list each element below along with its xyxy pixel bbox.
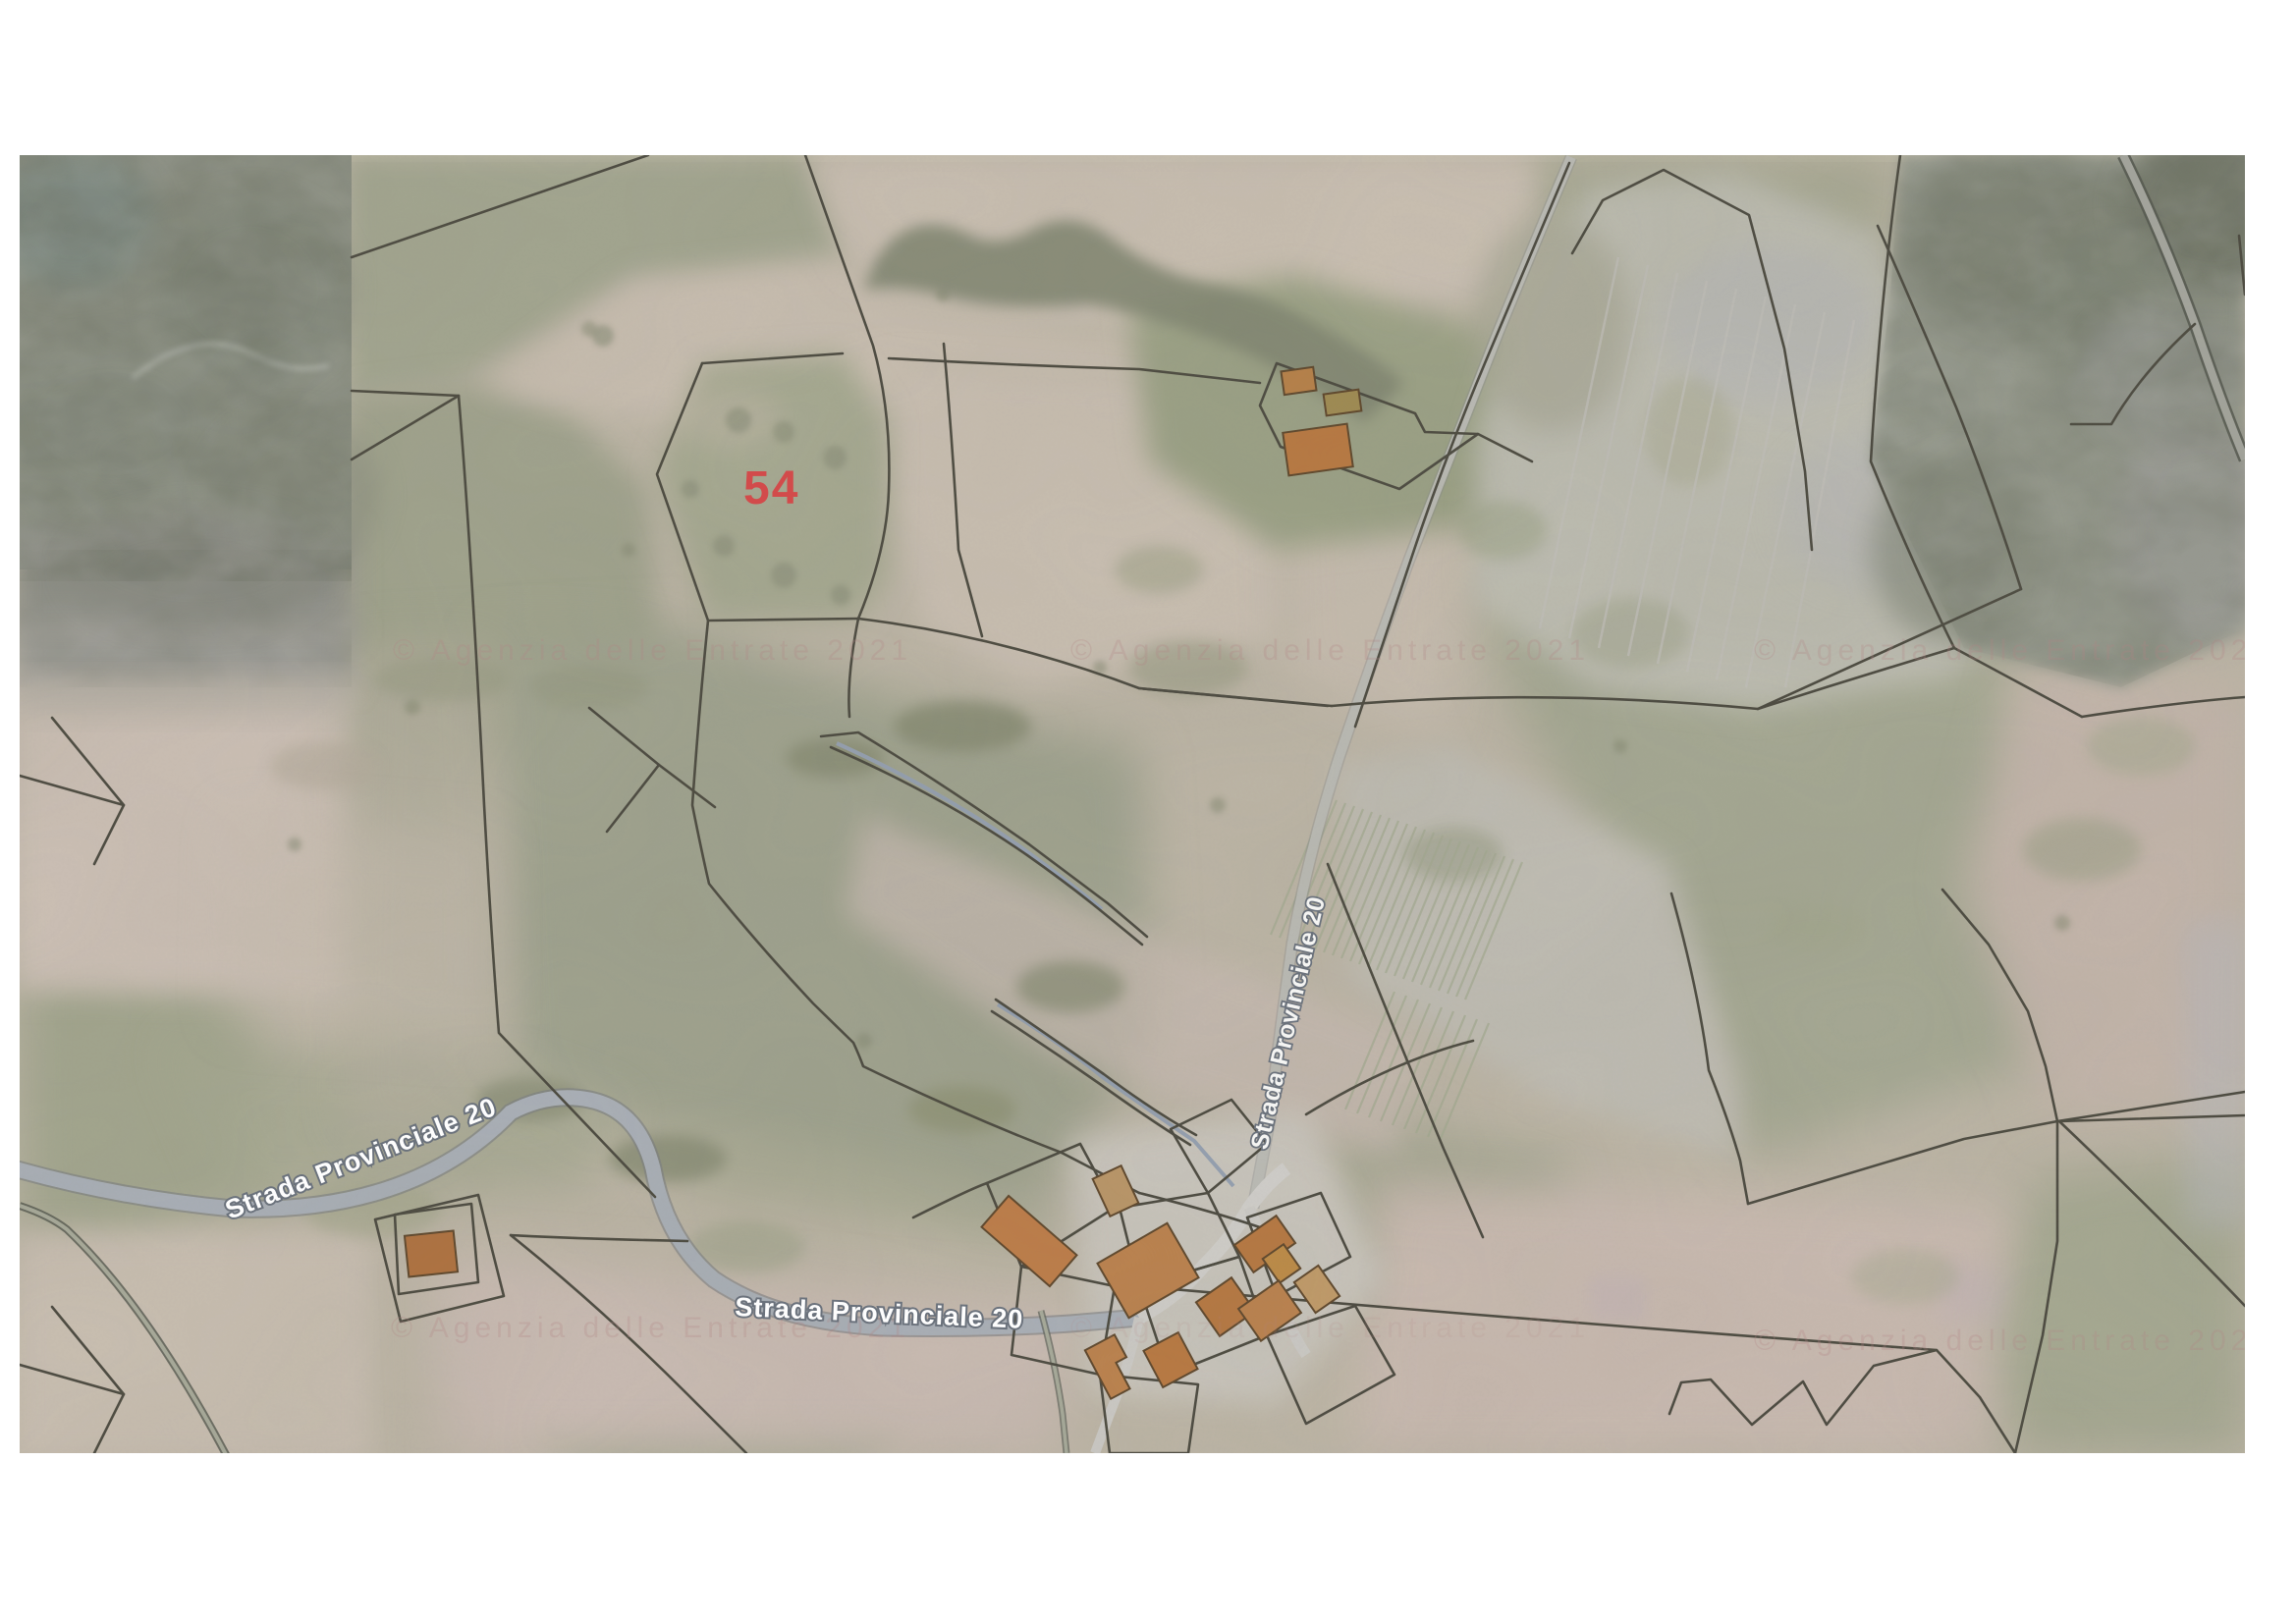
svg-text:© Agenzia delle Entrate 2021: © Agenzia delle Entrate 2021 xyxy=(1754,634,2273,667)
svg-text:© Agenzia delle Entrate 2021: © Agenzia delle Entrate 2021 xyxy=(1070,1312,1590,1344)
svg-text:© Agenzia delle Entrate 2021: © Agenzia delle Entrate 2021 xyxy=(1754,1325,2273,1357)
svg-text:© Agenzia delle Entrate 2021: © Agenzia delle Entrate 2021 xyxy=(393,634,912,667)
svg-text:54: 54 xyxy=(743,462,799,514)
svg-text:© Agenzia delle Entrate 2021: © Agenzia delle Entrate 2021 xyxy=(1070,634,1590,667)
